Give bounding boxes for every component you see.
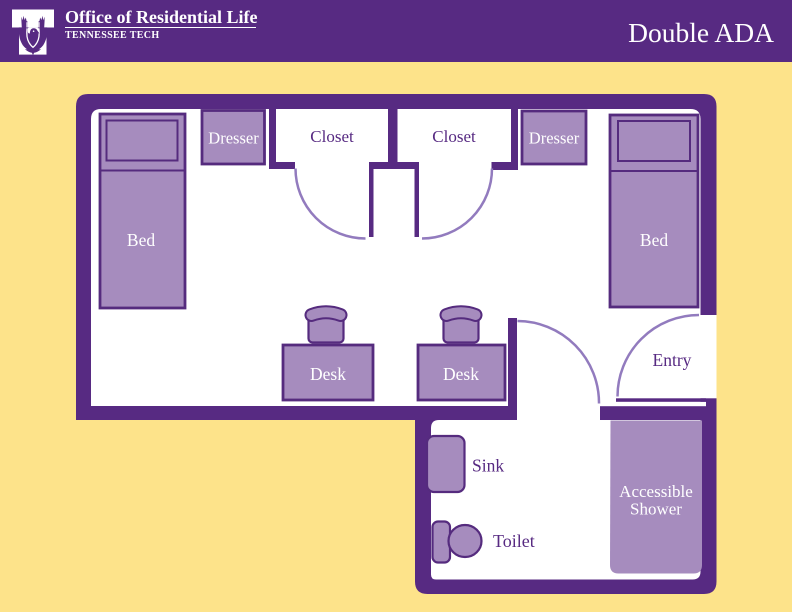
svg-text:Shower: Shower: [630, 500, 682, 519]
svg-text:Entry: Entry: [653, 350, 692, 370]
svg-text:Desk: Desk: [310, 364, 346, 384]
svg-text:Toilet: Toilet: [493, 531, 535, 551]
svg-text:Dresser: Dresser: [529, 129, 580, 148]
svg-text:Accessible: Accessible: [619, 482, 693, 501]
svg-text:Desk: Desk: [443, 364, 479, 384]
svg-text:Closet: Closet: [432, 127, 476, 146]
svg-text:Sink: Sink: [472, 456, 504, 476]
svg-text:Closet: Closet: [310, 127, 354, 146]
svg-text:Bed: Bed: [640, 230, 668, 250]
svg-text:Dresser: Dresser: [208, 129, 259, 148]
svg-text:Bed: Bed: [127, 230, 155, 250]
